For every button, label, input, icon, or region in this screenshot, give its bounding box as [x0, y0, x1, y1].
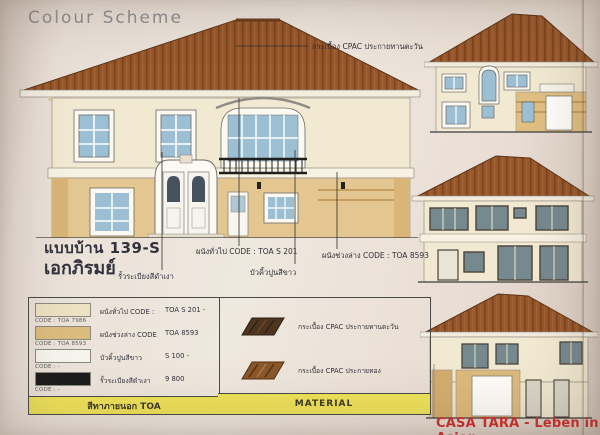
paint-row-label: บัวคิ้วปูนสีขาว: [100, 349, 158, 363]
swatch-code: CODE : -: [35, 364, 93, 370]
roof-tile-annotation: กระเบื้อง CPAC ประกายทานตะวัน: [312, 41, 423, 53]
paint-row: CODE : TOA 8593 ผนังช่วงล่าง CODE TOA 85…: [35, 326, 213, 347]
roof-tile-sample-gold: [240, 357, 286, 383]
side-elevation-left-drawing: [420, 286, 598, 422]
swatch-code: CODE : -: [35, 387, 93, 393]
roof-tile-sample-dark: [240, 313, 286, 339]
wall-general-annotation: ผนังทั่วไป CODE : TOA S 201: [196, 246, 298, 258]
material-row-label: กระเบื้อง CPAC ประกายทอง: [298, 365, 420, 376]
material-row-label: กระเบื้อง CPAC ประกายทานตะวัน: [298, 321, 420, 332]
paint-swatch-general: [35, 303, 91, 317]
paint-swatch-trim: [35, 349, 91, 363]
side-elevation-right-drawing: [424, 4, 598, 138]
rear-elevation-drawing: [410, 146, 596, 288]
material-row: กระเบื้อง CPAC ประกายทานตะวัน: [240, 304, 420, 348]
material-table: กระเบื้อง CPAC ประกายทานตะวัน กระเบื้อง …: [218, 297, 431, 415]
paint-row: CODE : TOA 7986 ผนังทั่วไป CODE : TOA S …: [35, 303, 213, 324]
railing-annotation: รั้วระเบียงสีดำเงา: [118, 271, 174, 283]
material-row: กระเบื้อง CPAC ประกายทอง: [240, 348, 420, 392]
paint-row-value: TOA S 201 -: [165, 303, 213, 314]
paint-swatch-railing: [35, 372, 91, 386]
paint-row-value: TOA 8593: [165, 326, 213, 337]
watermark-text: CASA TARA - Leben in Asien: [436, 416, 600, 435]
house-model-code: แบบบ้าน 139-S: [44, 239, 160, 257]
swatch-code: CODE : TOA 7986: [35, 318, 93, 324]
swatch-code: CODE : TOA 8593: [35, 341, 93, 347]
paint-swatch-lower: [35, 326, 91, 340]
paint-row-value: S 100 -: [165, 349, 213, 360]
paint-table-header: สีทาภายนอก TOA: [29, 396, 219, 414]
trim-white-annotation: บัวคิ้วปูนสีขาว: [250, 267, 296, 279]
paint-row-label: ผนังช่วงล่าง CODE: [100, 326, 158, 340]
colour-scheme-sheet: Colour Scheme: [0, 0, 600, 435]
paint-row: CODE : - รั้วระเบียงสีดำเงา 9 800: [35, 372, 213, 393]
paint-row-label: ผนังทั่วไป CODE :: [100, 303, 158, 317]
material-table-header: MATERIAL: [218, 393, 430, 414]
paper-edge-shadow: [581, 0, 584, 435]
material-rows: กระเบื้อง CPAC ประกายทานตะวัน กระเบื้อง …: [218, 298, 430, 393]
wall-lower-annotation: ผนังช่วงล่าง CODE : TOA 8593: [322, 250, 429, 262]
paint-rows: CODE : TOA 7986 ผนังทั่วไป CODE : TOA S …: [29, 298, 219, 396]
exterior-paint-table: CODE : TOA 7986 ผนังทั่วไป CODE : TOA S …: [28, 297, 220, 415]
paint-row: CODE : - บัวคิ้วปูนสีขาว S 100 -: [35, 349, 213, 370]
paint-row-value: 9 800: [165, 372, 213, 383]
paint-row-label: รั้วระเบียงสีดำเงา: [100, 372, 158, 386]
